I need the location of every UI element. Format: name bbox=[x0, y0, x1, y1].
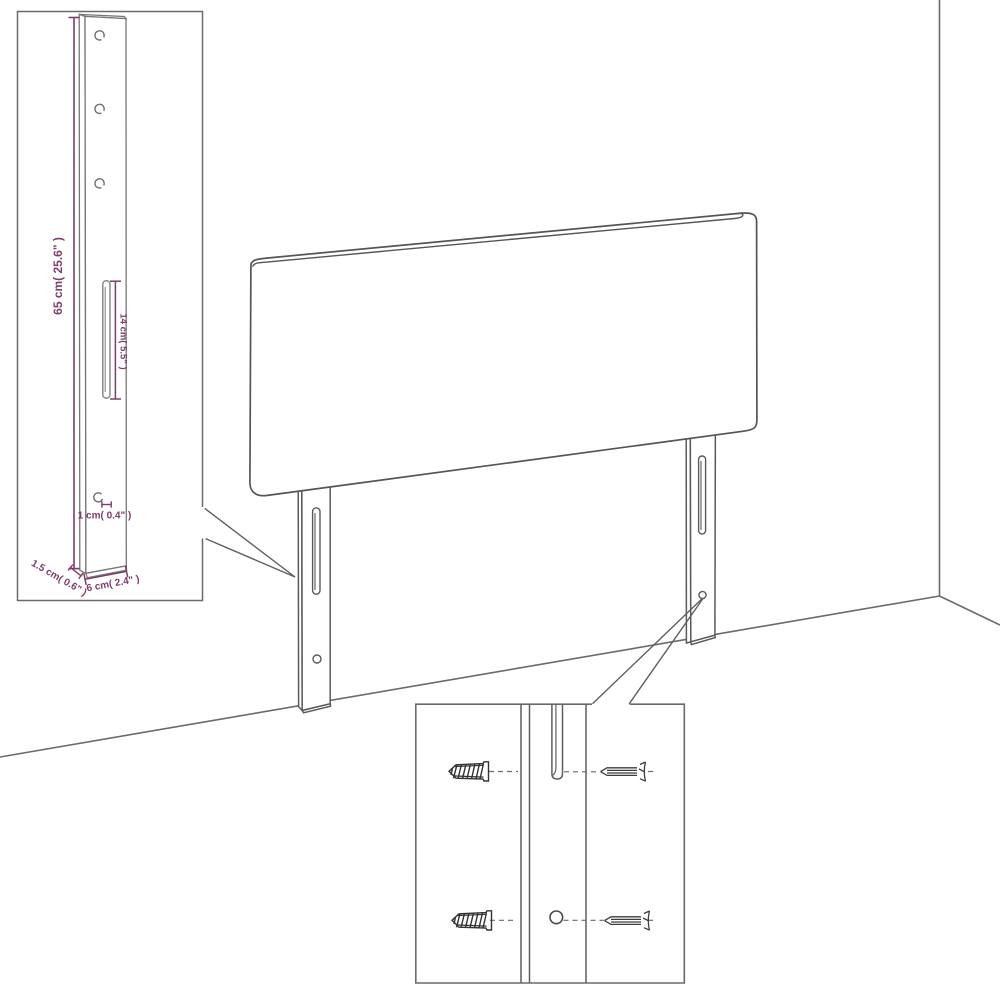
svg-text:65 cm( 25.6" ): 65 cm( 25.6" ) bbox=[51, 237, 65, 315]
svg-text:1 cm( 0.4" ): 1 cm( 0.4" ) bbox=[78, 511, 132, 522]
svg-text:14 cm( 5.5" ): 14 cm( 5.5" ) bbox=[117, 313, 128, 369]
